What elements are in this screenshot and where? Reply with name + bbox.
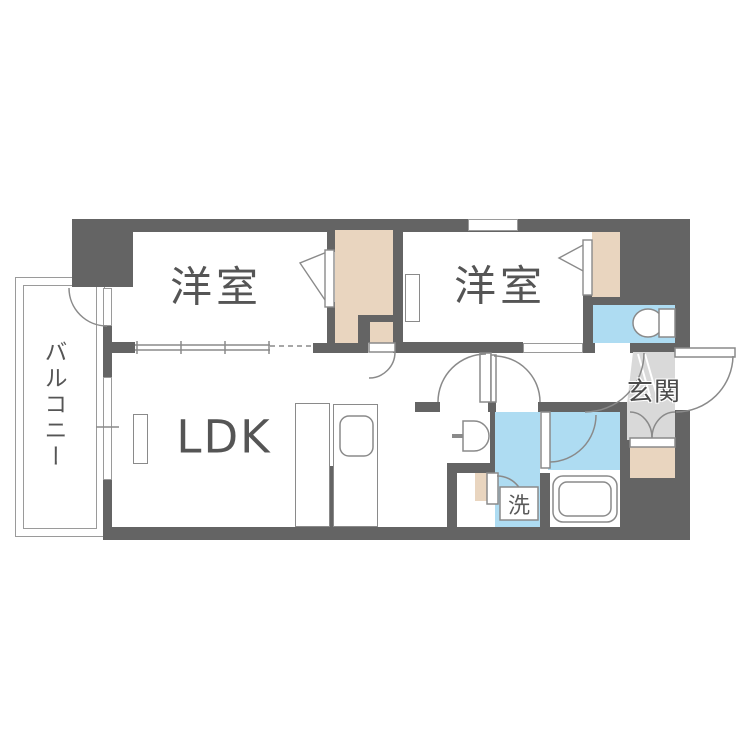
washbasin-icon bbox=[463, 421, 489, 451]
balcony-label: バルコニー bbox=[36, 340, 70, 470]
room-right-label: 洋室 bbox=[454, 253, 546, 314]
laundry-door-panel bbox=[487, 473, 498, 504]
washbasin-door-arc bbox=[438, 354, 486, 402]
floor-plan: 洋室 洋室 LDK 玄関 バルコニー 洗 bbox=[0, 0, 750, 750]
closet-door-panel bbox=[583, 240, 592, 295]
shoe-cabinet-panel bbox=[630, 438, 675, 447]
washroom-door-panel bbox=[491, 355, 496, 402]
bathroom-door-arc bbox=[550, 415, 596, 462]
kitchen-sink-icon bbox=[340, 416, 373, 456]
bathroom-door-panel bbox=[541, 412, 550, 468]
laundry-label: 洗 bbox=[508, 488, 530, 520]
closet-door-left-room bbox=[300, 252, 327, 303]
ldk-label: LDK bbox=[176, 411, 271, 464]
entrance-door-panel bbox=[675, 348, 735, 357]
washroom-door-arc bbox=[494, 356, 540, 402]
entrance-door-arc bbox=[676, 356, 733, 412]
closet-door-right-room bbox=[559, 244, 585, 272]
toilet-tank-icon bbox=[659, 309, 675, 337]
bathtub-inner-icon bbox=[559, 482, 611, 516]
entrance-label: 玄関 bbox=[627, 372, 681, 409]
hall-storage-door-panel bbox=[369, 343, 395, 352]
hall-storage-door-arc bbox=[369, 352, 395, 378]
washbasin-door-panel bbox=[480, 353, 491, 402]
room-left-label: 洋室 bbox=[170, 254, 262, 315]
closet-door-panel bbox=[325, 250, 334, 307]
balcony-door-arc bbox=[69, 288, 107, 326]
